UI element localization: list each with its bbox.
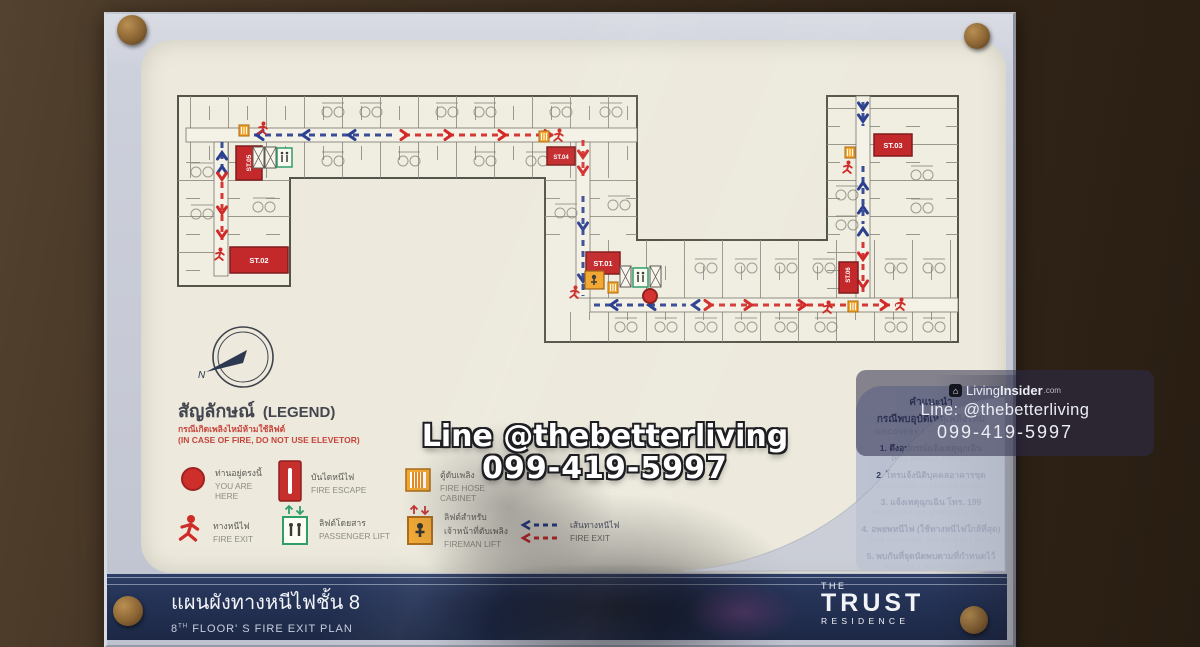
legend-label-en: FIREMAN LIFT (444, 539, 508, 549)
legend-label-th: เส้นทางหนีไฟ (570, 518, 619, 532)
fire-escape-icon (278, 460, 302, 502)
brand-residence: RESIDENCE (821, 616, 931, 626)
legend-label-en: FIRE EXIT (570, 533, 610, 543)
photo-fire-exit-plan: ST.05 ST.02 ST.04 ST.01 ST.03 ST.06 (0, 0, 1200, 647)
watermark-badge: ⌂ LivingInsider.com Line: @thebetterlivi… (856, 370, 1154, 456)
legend-item-fire-exit: ทางหนีไฟ FIRE EXIT (176, 514, 253, 544)
fireman-lift-icon (405, 504, 435, 546)
screw-top-right (964, 23, 990, 49)
legend-warning-th: กรณีเกิดเพลิงไหม้ห้ามใช้ลิฟต์ (178, 424, 360, 435)
watermark-center: Line @thebetterliving 099-419-5997 (355, 420, 855, 485)
screw-top-left (117, 15, 147, 45)
step-th: 5. พบกันที่จุดนัดพบตามที่กำหนดไว้ (856, 549, 1006, 563)
legend-item-passenger-lift: ลิฟต์โดยสาร PASSENGER LIFT (280, 504, 390, 546)
instruction-step: 3. แจ้งเหตุฉุกเฉิน โทร. 199 DIRECT LINE … (856, 495, 1006, 517)
brand-trust: TRUST (821, 591, 931, 615)
legend-label-en: YOU ARE HERE (215, 481, 267, 501)
plan-title-th: แผนผังทางหนีไฟชั้น 8 (171, 586, 360, 618)
legend-item-fire-escape: บันไดหนีไฟ FIRE ESCAPE (278, 460, 366, 502)
plan-title: แผนผังทางหนีไฟชั้น 8 8TH FLOOR' S FIRE E… (171, 586, 360, 635)
you-are-here-icon (180, 466, 206, 492)
legend-title: สัญลักษณ์(LEGEND) (178, 396, 335, 425)
screw-bottom-left (113, 596, 143, 626)
step-en: PULL MANUAL STATION (856, 456, 1006, 463)
legend-item-route-blue: เส้นทางหนีไฟ (520, 518, 619, 532)
legend-warning: กรณีเกิดเพลิงไหม้ห้ามใช้ลิฟต์ (IN CASE O… (178, 424, 360, 446)
logo-suffix: .com (1044, 386, 1061, 395)
instruction-step: 5. พบกันที่จุดนัดพบตามที่กำหนดไว้ ASSEMB… (856, 549, 1006, 571)
watermark-line-contact: Line @thebetterliving (355, 420, 855, 453)
instruction-step: 4. อพยพหนีไฟ (ใช้ทางหนีไฟใกล้ที่สุด) FIR… (856, 522, 1006, 544)
screw-bottom-right (960, 606, 988, 634)
livinginsider-logo: ⌂ LivingInsider.com (949, 383, 1061, 398)
legend-label-en: FIRE ESCAPE (311, 485, 366, 495)
step-en: ASSEMBLY MEETING POINT (856, 564, 1006, 571)
legend-title-th: สัญลักษณ์ (178, 401, 255, 421)
plan-title-en-text: FLOOR' S FIRE EXIT PLAN (192, 623, 353, 635)
legend-warning-en: (IN CASE OF FIRE, DO NOT USE ELEVETOR) (178, 435, 360, 446)
logo-light: Living (966, 383, 1000, 398)
step-th: 4. อพยพหนีไฟ (ใช้ทางหนีไฟใกล้ที่สุด) (856, 522, 1006, 536)
passenger-lift-icon (280, 504, 310, 546)
badge-phone: 099-419-5997 (937, 422, 1073, 443)
legend-label-th: ทางหนีไฟ (213, 519, 253, 533)
step-th: 3. แจ้งเหตุฉุกเฉิน โทร. 199 (856, 495, 1006, 509)
badge-contact: Line: @thebetterliving (921, 401, 1090, 420)
route-arrow-blue-icon (520, 520, 562, 530)
legend-label-en: FIRE HOSE CABINET (440, 483, 498, 503)
legend-title-en: (LEGEND) (263, 404, 336, 421)
title-bar: แผนผังทางหนีไฟชั้น 8 8TH FLOOR' S FIRE E… (107, 574, 1007, 640)
step-en: FIRE EVACUATE (VIA NEAREST EXIT) (856, 537, 1006, 544)
step-en: DIRECT LINE 199 (EMERGENCY NO.) (856, 510, 1006, 517)
legend-label-en: PASSENGER LIFT (319, 531, 390, 541)
step-th: 2. โทรแจ้งนิติบุคคลอาคารชุด (856, 468, 1006, 482)
legend-item-you-are-here: ท่านอยู่ตรงนี้ YOU ARE HERE (180, 466, 267, 501)
logo-bold: Insider (1000, 383, 1043, 398)
legend-label-th: ท่านอยู่ตรงนี้ (215, 466, 267, 480)
legend-item-route-red: FIRE EXIT (520, 533, 610, 543)
plan-title-en: 8TH FLOOR' S FIRE EXIT PLAN (171, 623, 360, 635)
route-arrow-red-icon (520, 533, 562, 543)
step-en: CALL JURISTIC PERSON OFFICE (856, 483, 1006, 490)
watermark-phone: 099-419-5997 (355, 453, 855, 485)
trust-residence-logo: THE TRUST RESIDENCE (821, 581, 931, 626)
instruction-step: 2. โทรแจ้งนิติบุคคลอาคารชุด CALL JURISTI… (856, 468, 1006, 490)
legend-item-fireman-lift: ลิฟต์สำหรับ เจ้าหน้าที่ดับเพลิง FIREMAN … (405, 504, 508, 549)
legend-label-th: ลิฟต์โดยสาร (319, 516, 390, 530)
floor-ordinal: TH (178, 623, 188, 629)
legend-label-th: ลิฟต์สำหรับ (444, 510, 508, 524)
legend-label-en: FIRE EXIT (213, 534, 253, 544)
house-icon: ⌂ (949, 384, 962, 397)
legend-label-th: เจ้าหน้าที่ดับเพลิง (444, 524, 508, 538)
fire-exit-man-icon (176, 514, 204, 544)
